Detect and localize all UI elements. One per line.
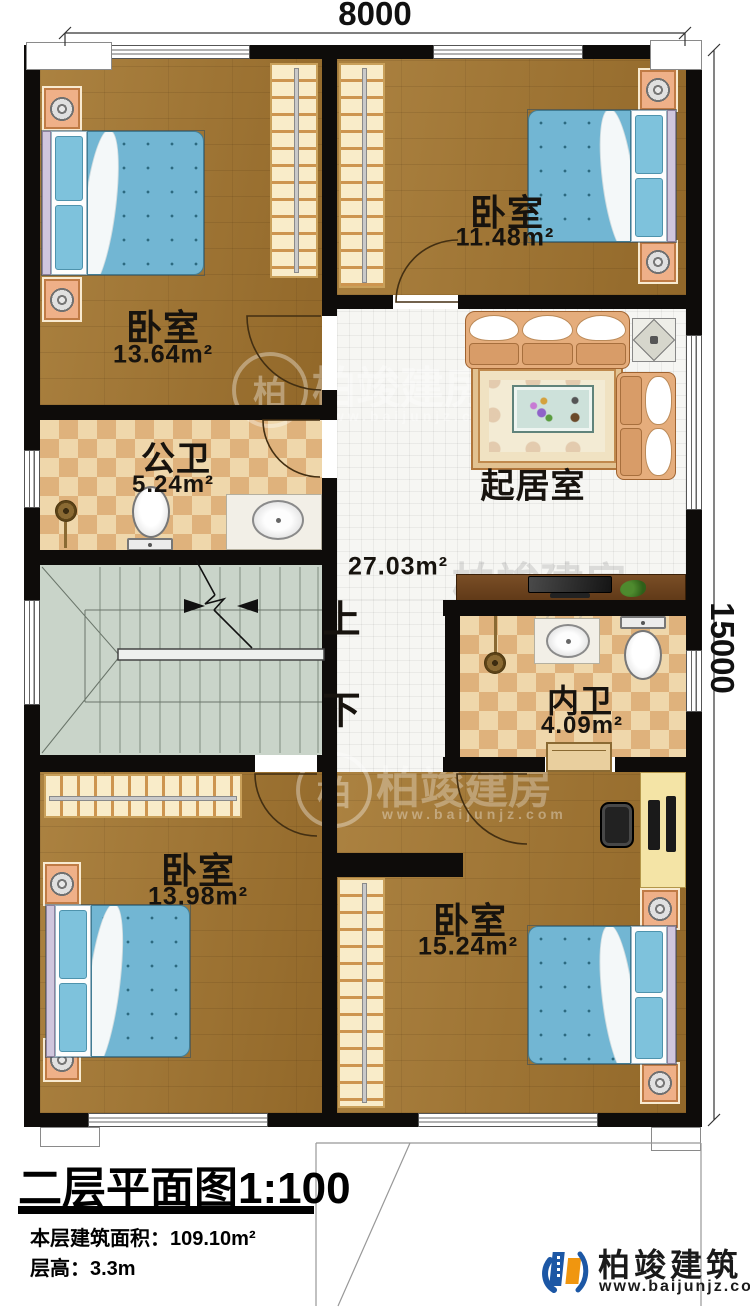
bed-sheet bbox=[591, 926, 631, 1064]
room-label-living: 起居室 bbox=[481, 459, 586, 508]
floor-mop bbox=[55, 500, 77, 522]
floor-height-label: 层高： bbox=[30, 1258, 90, 1280]
bed-headboard bbox=[667, 110, 676, 242]
room-area-living: 27.03m² bbox=[348, 553, 448, 582]
monitor bbox=[648, 800, 660, 850]
bed-pillows bbox=[631, 926, 667, 1064]
wall-interior bbox=[443, 757, 545, 772]
corner-step bbox=[40, 1127, 100, 1147]
wall-interior bbox=[322, 45, 337, 316]
company-logo-icon bbox=[540, 1240, 592, 1298]
wall-interior bbox=[322, 853, 463, 877]
room-area-bedroom-bl: 13.98m² bbox=[148, 883, 248, 912]
sofa-seat-cushions bbox=[469, 343, 626, 365]
bed-sheet bbox=[592, 110, 631, 242]
corner-side-table bbox=[632, 318, 676, 362]
sofa-seat-cushions bbox=[620, 376, 642, 476]
nightstand bbox=[42, 277, 82, 322]
door-threshold bbox=[546, 742, 612, 772]
mop-handle bbox=[64, 522, 67, 548]
room-area-inner-bath: 4.09m² bbox=[541, 712, 623, 740]
corner-step bbox=[650, 40, 702, 70]
wall-interior bbox=[24, 550, 337, 565]
logo-building-blue bbox=[549, 1252, 565, 1286]
sink-basin bbox=[546, 624, 590, 658]
window bbox=[88, 1113, 268, 1127]
floor-area-label: 本层建筑面积： bbox=[30, 1228, 170, 1250]
mop-handle bbox=[494, 616, 497, 656]
nightstand bbox=[43, 862, 81, 906]
wall-interior bbox=[24, 405, 337, 420]
window bbox=[24, 450, 40, 508]
desk bbox=[640, 772, 686, 888]
corner-step bbox=[651, 1127, 701, 1151]
sofa-back-cushions bbox=[645, 376, 672, 476]
sink-basin bbox=[252, 500, 304, 540]
floor-stairs bbox=[40, 565, 322, 755]
coffee-table bbox=[512, 385, 594, 433]
tv-stand bbox=[550, 593, 590, 598]
wardrobe bbox=[44, 774, 242, 818]
bed-mattress bbox=[91, 905, 190, 1057]
toilet-tank bbox=[620, 616, 666, 629]
desk-speaker bbox=[666, 796, 676, 852]
wall-interior bbox=[443, 600, 702, 616]
bed-mattress bbox=[87, 131, 204, 275]
wardrobe bbox=[339, 63, 385, 288]
title-underline bbox=[18, 1206, 314, 1214]
wall-interior bbox=[317, 755, 337, 772]
wall-interior bbox=[337, 295, 393, 309]
bed-pillows bbox=[631, 110, 667, 242]
bed-headboard bbox=[46, 905, 55, 1057]
stairs-down-label: 下 bbox=[322, 680, 361, 735]
dimension-line-right bbox=[708, 44, 720, 1126]
floor-height-value: 3.3m bbox=[90, 1258, 136, 1280]
floor-mop bbox=[484, 652, 506, 674]
nightstand bbox=[640, 888, 680, 930]
bed-double bbox=[528, 110, 676, 242]
window bbox=[686, 650, 702, 712]
floor-area-line: 本层建筑面积：109.10m² bbox=[30, 1222, 256, 1251]
dimension-width: 8000 bbox=[338, 0, 411, 33]
sofa-two-seat bbox=[616, 372, 676, 480]
bed-sheet bbox=[91, 905, 132, 1057]
bed-sheet bbox=[87, 131, 127, 275]
tv bbox=[528, 576, 612, 593]
bed-headboard bbox=[42, 131, 51, 275]
wall-outer-left bbox=[24, 45, 40, 1127]
logo-building-orange bbox=[565, 1258, 581, 1284]
nightstand bbox=[42, 86, 82, 131]
nightstand bbox=[638, 68, 678, 112]
bed-mattress bbox=[528, 926, 631, 1064]
sofa-three-seat bbox=[465, 311, 630, 369]
wall-interior bbox=[24, 755, 255, 772]
desk-chair bbox=[600, 802, 634, 848]
wall-interior bbox=[458, 295, 702, 309]
nightstand bbox=[640, 1062, 680, 1104]
bed-headboard bbox=[667, 926, 676, 1064]
bed-double bbox=[46, 905, 190, 1057]
window bbox=[418, 1113, 598, 1127]
bed-pillows bbox=[51, 131, 87, 275]
wardrobe bbox=[270, 63, 318, 278]
bed-double bbox=[528, 926, 676, 1064]
wall-outer-right bbox=[686, 45, 702, 1127]
corner-step bbox=[26, 42, 112, 70]
toilet bbox=[624, 630, 662, 680]
sofa-back-cushions bbox=[469, 315, 626, 341]
floor-height-line: 层高：3.3m bbox=[30, 1252, 136, 1281]
wall-interior bbox=[322, 478, 337, 1113]
window bbox=[100, 45, 250, 59]
bed-pillows bbox=[55, 905, 91, 1057]
dimension-height: 15000 bbox=[703, 602, 741, 694]
company-logo: 柏竣建筑 www.baijunjz.com bbox=[540, 1240, 740, 1302]
floor-area-value: 109.10m² bbox=[170, 1228, 256, 1250]
window bbox=[686, 335, 702, 510]
wall-interior bbox=[445, 600, 460, 772]
wall-interior bbox=[615, 757, 702, 772]
stairs-up-label: 上 bbox=[322, 589, 361, 644]
bed-double bbox=[42, 131, 204, 275]
window bbox=[24, 600, 40, 705]
room-area-bedroom-br: 15.24m² bbox=[418, 933, 518, 962]
company-website: www.baijunjz.com bbox=[599, 1278, 750, 1296]
nightstand bbox=[638, 240, 678, 284]
window bbox=[433, 45, 583, 59]
wardrobe bbox=[338, 878, 385, 1108]
room-area-bedroom-tr: 11.48m² bbox=[456, 224, 555, 253]
floor-plan-canvas: 柏 柏竣建房 www.baijunjz.com 柏竣建房 www.baijunj… bbox=[0, 0, 750, 1307]
room-area-bedroom-tl: 13.64m² bbox=[113, 341, 213, 370]
room-area-public-bath: 5.24m² bbox=[132, 471, 214, 499]
